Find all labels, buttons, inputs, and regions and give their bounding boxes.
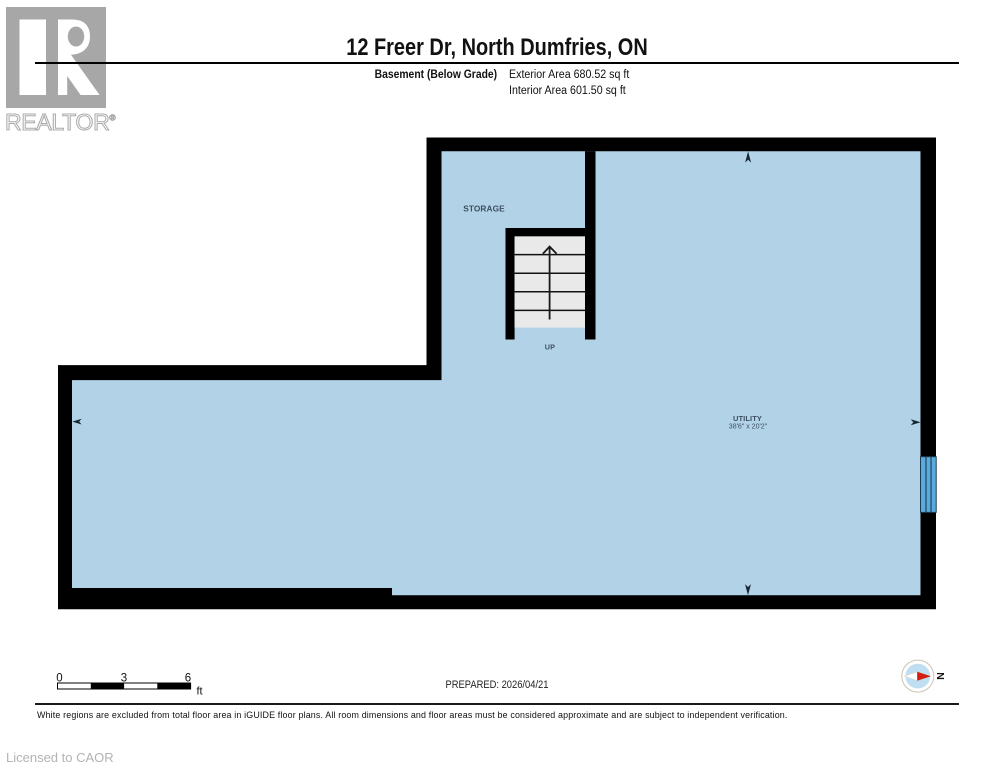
svg-text:N: N xyxy=(934,672,946,680)
svg-text:38'6" x 20'2": 38'6" x 20'2" xyxy=(729,424,768,431)
svg-text:UP: UP xyxy=(545,342,555,351)
svg-text:STORAGE: STORAGE xyxy=(463,204,505,214)
svg-text:UTILITY: UTILITY xyxy=(733,414,762,423)
svg-text:0: 0 xyxy=(56,673,62,685)
